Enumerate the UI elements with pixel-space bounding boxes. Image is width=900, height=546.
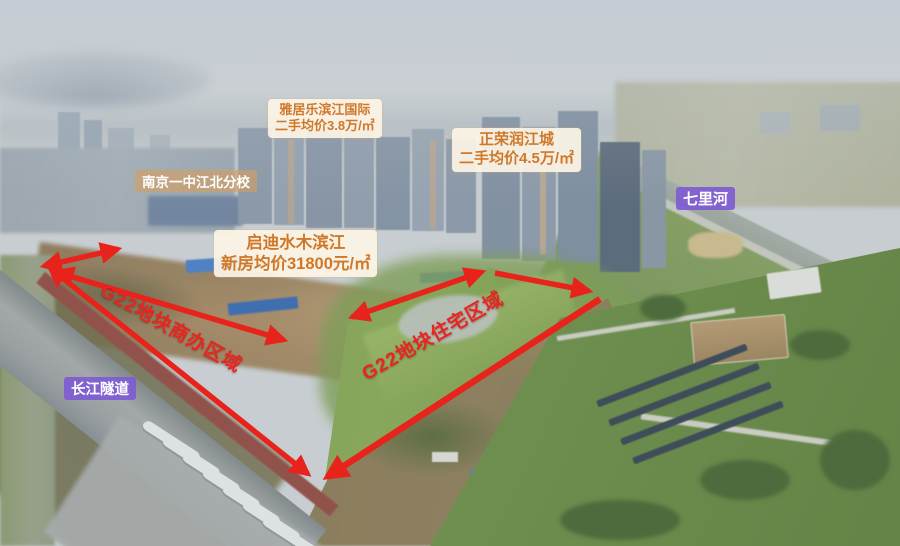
apartment-tower — [306, 131, 342, 228]
project-price: 新房均价31800元/㎡ — [221, 254, 370, 275]
price-label-zhengrong: 正荣润江城 二手均价4.5万/㎡ — [452, 128, 581, 172]
distant-block — [760, 112, 790, 134]
trees — [820, 430, 890, 490]
qilihe-river-label: 七里河 — [676, 187, 735, 210]
skate-park-patch — [688, 232, 743, 258]
apartment-tower — [642, 150, 666, 268]
tower-warm-facade — [430, 140, 436, 228]
project-name: 正荣润江城 — [459, 131, 574, 150]
school-label: 南京一中江北分校 — [135, 170, 257, 192]
price-label-yajule: 雅居乐滨江国际 二手均价3.8万/㎡ — [268, 99, 382, 138]
price-label-qidi: 启迪水木滨江 新房均价31800元/㎡ — [214, 230, 377, 277]
trees — [700, 460, 790, 500]
changjiang-tunnel-label: 长江隧道 — [64, 377, 136, 400]
project-price: 二手均价4.5万/㎡ — [459, 150, 574, 169]
project-name: 启迪水木滨江 — [221, 233, 370, 254]
project-name: 雅居乐滨江国际 — [275, 102, 375, 118]
apartment-tower-dark — [600, 142, 640, 272]
school-campus-roofs — [148, 196, 243, 226]
shack — [432, 452, 458, 462]
tower-warm-facade — [288, 140, 294, 224]
distant-block — [820, 105, 860, 131]
apartment-tower — [412, 129, 444, 231]
trees — [640, 295, 686, 321]
apartment-tower — [344, 124, 374, 228]
aerial-photo-annotated: G22地块商办区域 G22地块住宅区域 雅居乐滨江国际 二手均价3.8万/㎡ 正… — [0, 0, 900, 546]
apartment-tower — [376, 137, 410, 230]
project-price: 二手均价3.8万/㎡ — [275, 118, 375, 134]
trees — [560, 500, 680, 540]
trees — [790, 330, 850, 360]
